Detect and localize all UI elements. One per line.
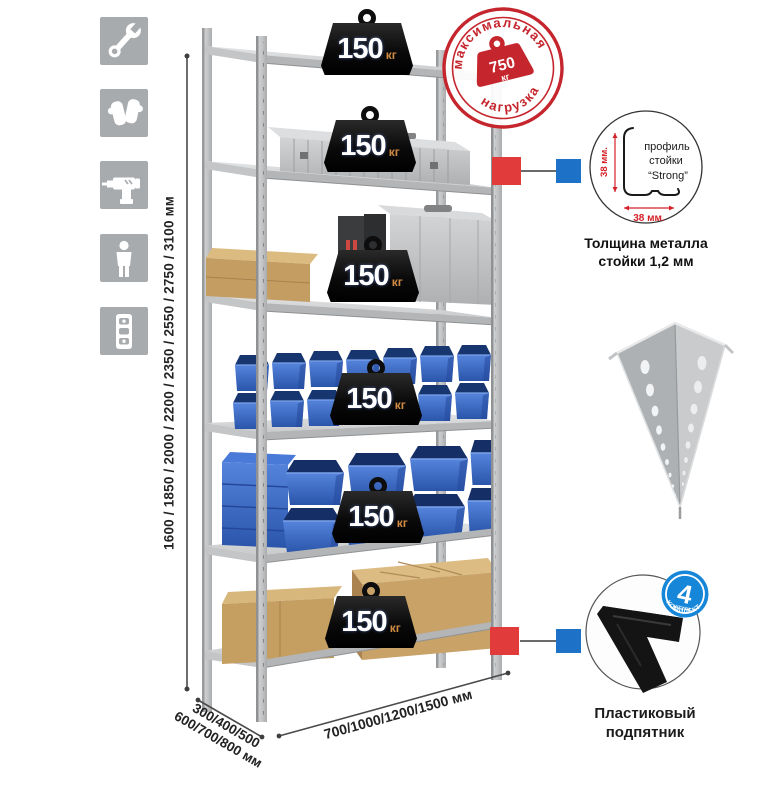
profile-vertical-dim-label: 38 мм. [599,147,610,177]
weight-icon: 150 кг [327,250,419,302]
weight-icon: 150 кг [321,23,413,75]
weight-icon: 150 кг [332,491,424,543]
shelf5-load-weight: 150 кг [332,477,424,547]
profile-caption-line1: Толщина металла [584,235,708,251]
level-icon [100,307,148,355]
gloves-icon [100,89,148,137]
weight-icon: 150 кг [330,373,422,425]
angle-post-image [595,295,765,530]
foot-caption-line1: Пластиковый [594,705,695,722]
load-unit: кг [395,398,406,412]
callout-marker-blue-bottom [556,629,581,653]
height-dimension-line [185,54,190,692]
callout-marker-red-top [492,157,521,185]
load-value: 150 [337,33,382,66]
person-icon [100,234,148,282]
profile-label-line3: “Strong” [648,170,688,182]
shelf3-load-weight: 150 кг [327,236,419,306]
load-unit: кг [397,516,408,530]
drill-icon [100,161,148,209]
profile-label-line1: профиль [644,141,690,153]
wrench-icon [100,17,148,65]
width-dimension-line [277,671,511,739]
load-unit: кг [389,145,400,159]
weight-icon: 150 кг [325,596,417,648]
profile-detail: 38 мм. 38 мм. профиль стойки “Strong” То… [585,108,707,278]
shelf6-load-weight: 150 кг [325,582,417,652]
plastic-foot-detail: 4 штуки в комплекте Пластиковый подпятни… [583,566,763,761]
profile-caption-line2: стойки 1,2 мм [598,253,693,269]
load-value: 150 [340,130,385,163]
weight-icon: 150 кг [324,120,416,172]
shelf2-load-weight: 150 кг [324,106,416,176]
callout-marker-blue-top [556,159,581,183]
load-value: 150 [346,383,391,416]
load-unit: кг [386,48,397,62]
load-value: 150 [341,606,386,639]
foot-caption-line2: подпятник [606,724,685,741]
load-value: 150 [348,501,393,534]
height-dimension-label: 1600 / 1850 / 2000 / 2200 / 2350 / 2550 … [162,196,177,550]
profile-horizontal-dim-label: 38 мм. [633,213,665,224]
shelf4-load-weight: 150 кг [330,359,422,429]
load-unit: кг [390,621,401,635]
shelf1-load-weight: 150 кг [321,9,413,79]
load-unit: кг [392,275,403,289]
callout-marker-red-bottom [490,627,519,655]
profile-label-line2: стойки [649,155,683,167]
load-value: 150 [343,260,388,293]
max-load-stamp: максимальная нагрузка 750 кг [438,3,568,133]
infographic-canvas: { "assembly_icons": [ {"icon": "wrench-i… [0,0,765,765]
